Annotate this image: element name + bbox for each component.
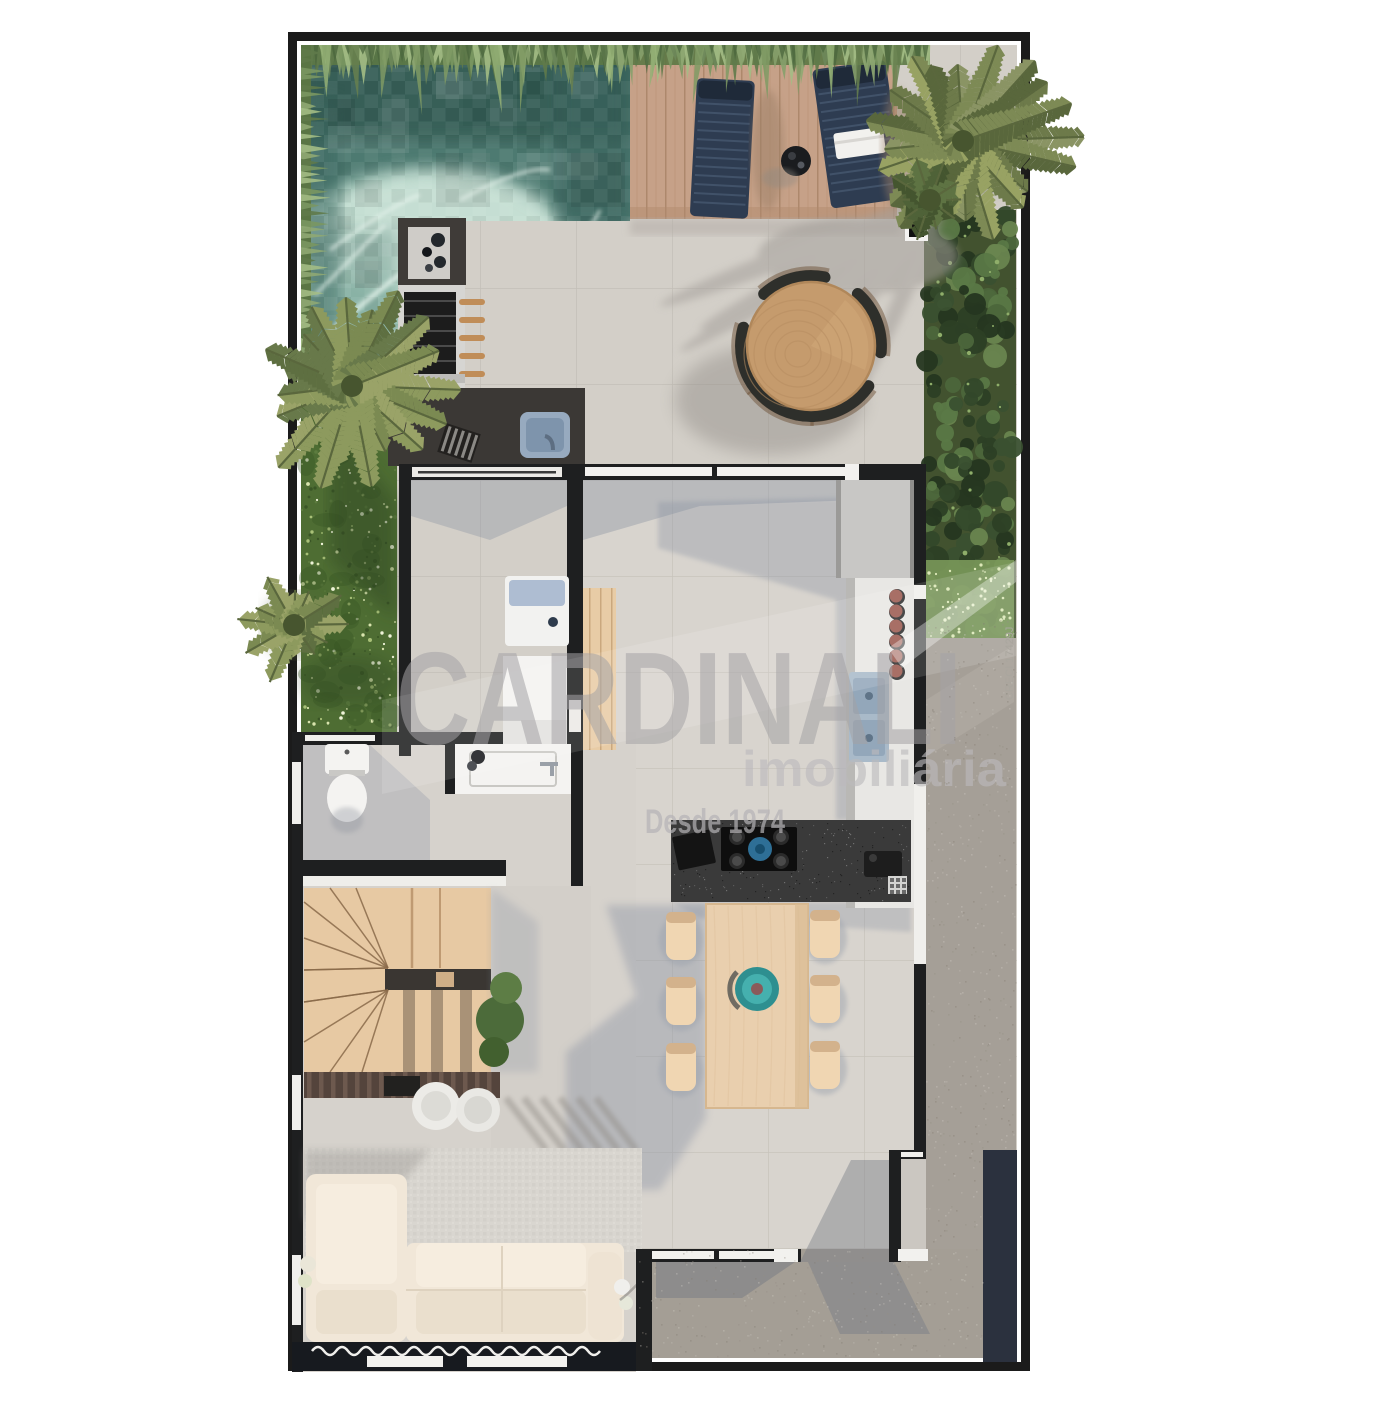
svg-text:imobiliária: imobiliária	[742, 741, 1007, 797]
svg-text:CRECI 17429J: CRECI 17429J	[1004, 627, 1016, 700]
svg-text:Desde 1974: Desde 1974	[645, 803, 785, 841]
